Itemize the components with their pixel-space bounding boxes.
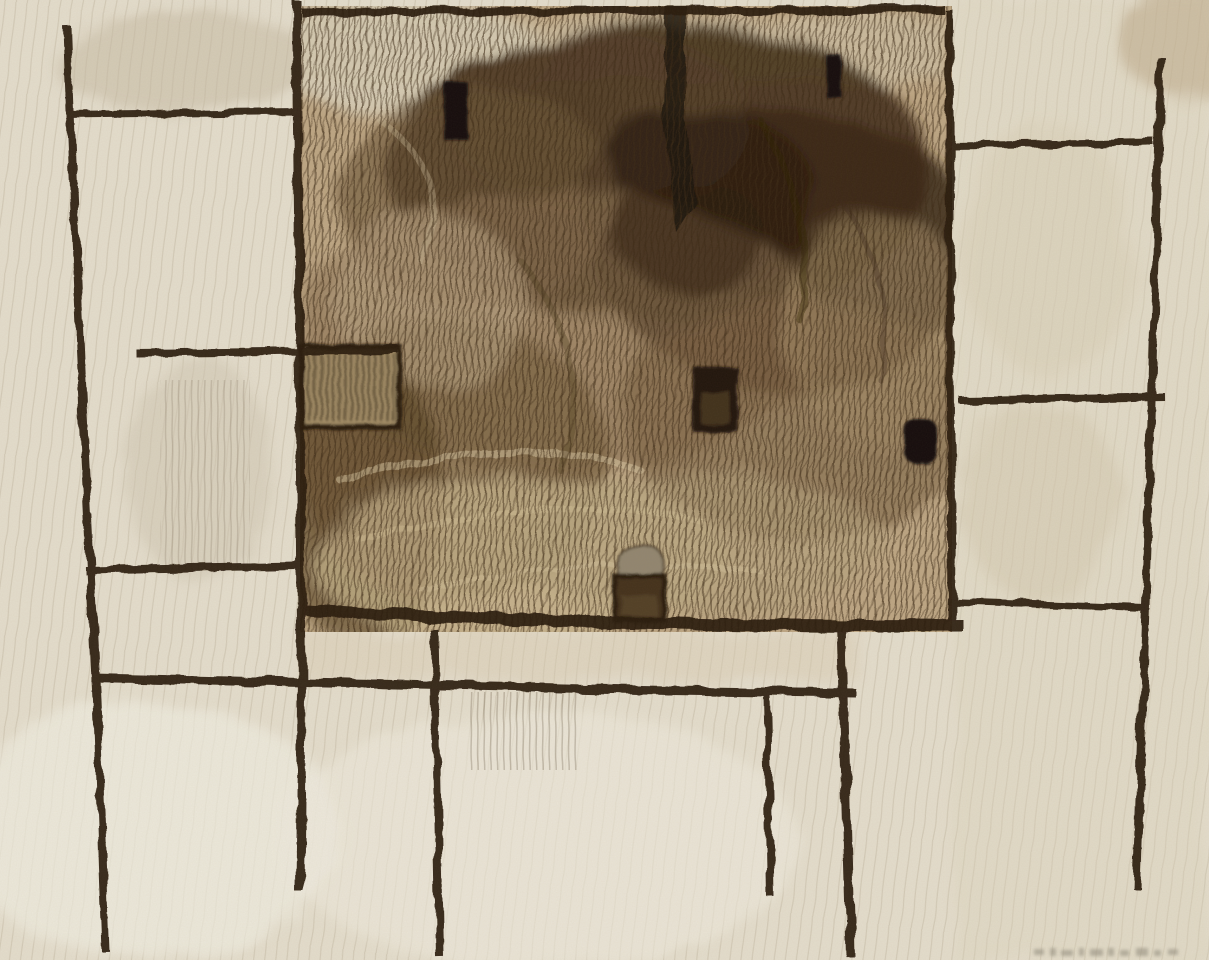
artwork-canvas: Abstract charcoal and crayon drawing: a … <box>0 0 1209 960</box>
abstract-drawing: Abstract charcoal and crayon drawing: a … <box>0 0 1209 960</box>
paper-grain-overlay <box>0 0 1209 960</box>
